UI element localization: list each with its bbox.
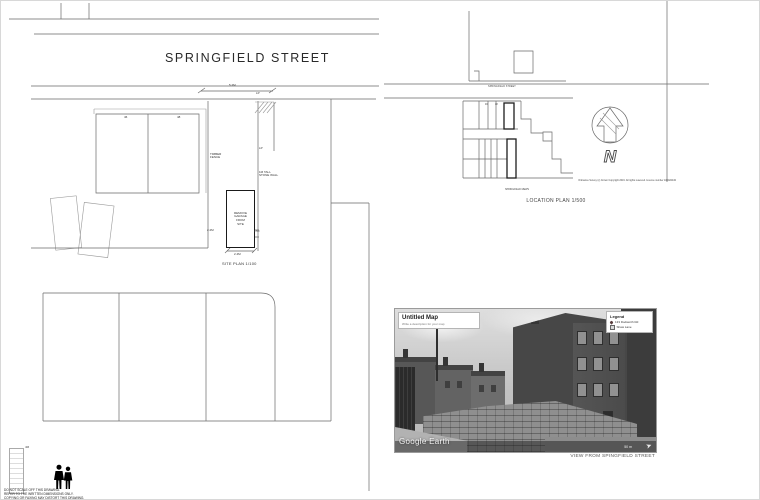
location-street-label: SPRINGFIELD STREET [488, 86, 516, 89]
dim-bottom: 2.4M [234, 253, 241, 256]
site-plan-linework [1, 1, 381, 500]
legend-title: Legend [610, 314, 649, 319]
location-house-right: 48 [495, 104, 498, 107]
drawing-sheet: SPRINGFIELD STREET 5.2M 46 48 TIMBER FEN… [0, 0, 760, 500]
photo-window [479, 385, 484, 392]
garage-label: REMOVE GARAGE FROM SITE [234, 212, 247, 227]
stone-wall-label: 1M TALL STONE WALL [259, 171, 278, 178]
location-house-left: 46 [485, 104, 488, 107]
mews-label: SPRINGFIELD MEWS [497, 189, 537, 192]
location-plan: N SPRINGFIELD STREET 46 48 Ordnance Surv… [381, 1, 711, 216]
lp-label: LP [259, 147, 263, 150]
dim-left: 2.2M [207, 229, 214, 232]
site-plan: SPRINGFIELD STREET 5.2M 46 48 TIMBER FEN… [1, 1, 381, 500]
location-plan-linework: N [381, 1, 711, 216]
map-marker-icon [610, 325, 615, 330]
os-copyright: Ordnance Survey (c) Crown Copyright 2019… [576, 180, 676, 183]
photo-chimney [403, 349, 408, 358]
timber-fence-label: TIMBER FENCE [210, 153, 221, 160]
untitled-map-panel: Untitled Map Write a description for you… [398, 312, 480, 329]
garage-outline: REMOVE GARAGE FROM SITE [226, 190, 255, 248]
photo-window [445, 381, 450, 388]
site-plan-title: SITE PLAN 1/100 [222, 261, 257, 266]
svg-text:N: N [604, 147, 617, 166]
photo-window [491, 385, 496, 392]
house-number-right: 48 [177, 116, 180, 119]
street-photo: Untitled Map Write a description for you… [394, 308, 657, 453]
photo-chimney [443, 357, 448, 366]
map-pin-icon [609, 320, 613, 324]
scale-bar-label: 4M [25, 445, 29, 449]
legend-item: 133 Dodworth Rd [610, 320, 649, 324]
legend-panel: Legend 133 Dodworth Rd Shaw Lane [606, 311, 653, 333]
location-plan-title: LOCATION PLAN 1/500 [506, 198, 606, 204]
disclaimer-note: DO NOT SCALE OFF THIS DRAWING. REFER TO … [4, 489, 84, 500]
map-subtitle: Write a description for your map [402, 322, 476, 326]
dim-top: 5.2M [229, 84, 236, 87]
human-figures-icon [51, 464, 77, 490]
legend-item: Shaw Lane [610, 325, 649, 330]
photo-window [457, 381, 462, 388]
photo-caption: VIEW FROM SPINGFIELD STREET [521, 454, 655, 459]
map-title: Untitled Map [402, 315, 476, 321]
street-title: SPRINGFIELD STREET [165, 51, 330, 65]
photo-scale-text: 50 m [624, 445, 632, 449]
lp-label-top: LP [256, 92, 260, 95]
north-arrow-icon: N [592, 107, 628, 166]
house-number-left: 46 [124, 116, 127, 119]
google-earth-watermark: Google Earth [399, 437, 450, 446]
photo-chimney [479, 363, 484, 372]
dim-right: 0.5M [254, 231, 259, 234]
